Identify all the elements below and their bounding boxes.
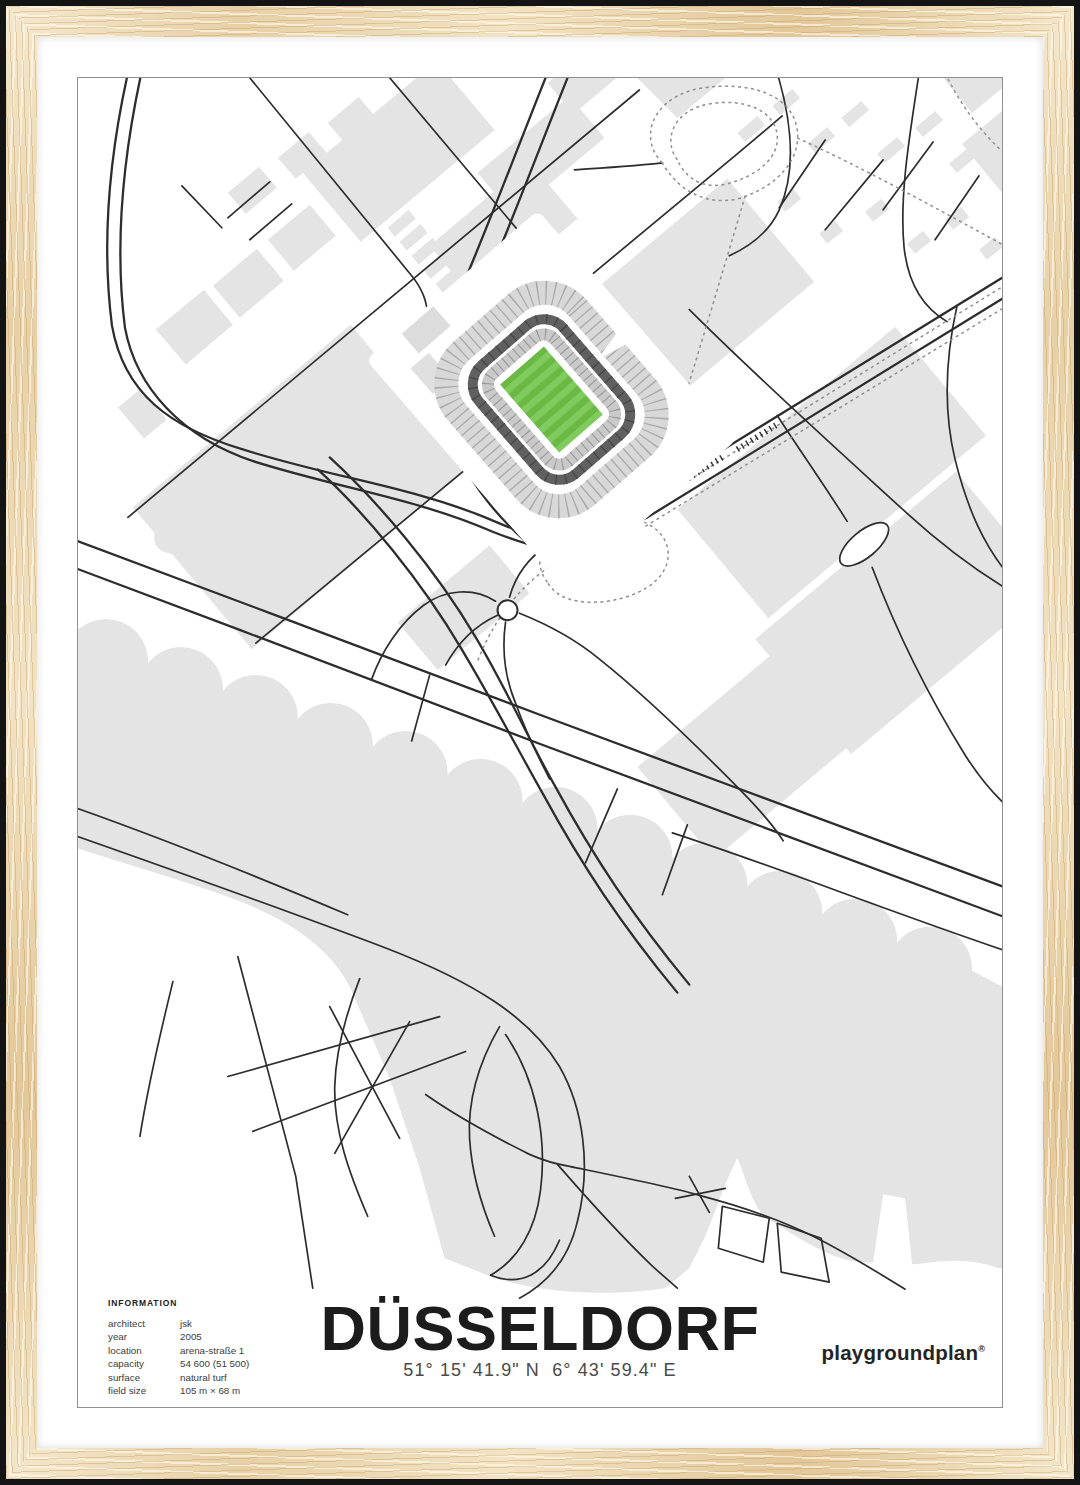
framed-poster: INFORMATION architect jsk year 2005 loca… [0, 0, 1080, 1485]
wood-frame-left [6, 6, 37, 1479]
roundabout [498, 600, 518, 620]
brand-logo: playgroundplan® [822, 1341, 985, 1365]
wood-frame-right [1043, 6, 1074, 1479]
registered-mark: ® [978, 1344, 985, 1354]
street-map [78, 78, 1002, 1407]
info-row-field-size: field size 105 m × 68 m [108, 1384, 388, 1397]
wood-frame-top [6, 6, 1074, 37]
brand-name: playgroundplan [822, 1341, 979, 1364]
wood-frame-bottom [6, 1448, 1074, 1479]
map-area [77, 77, 1003, 1408]
info-value: 105 m × 68 m [180, 1384, 240, 1397]
info-label: field size [108, 1384, 180, 1397]
